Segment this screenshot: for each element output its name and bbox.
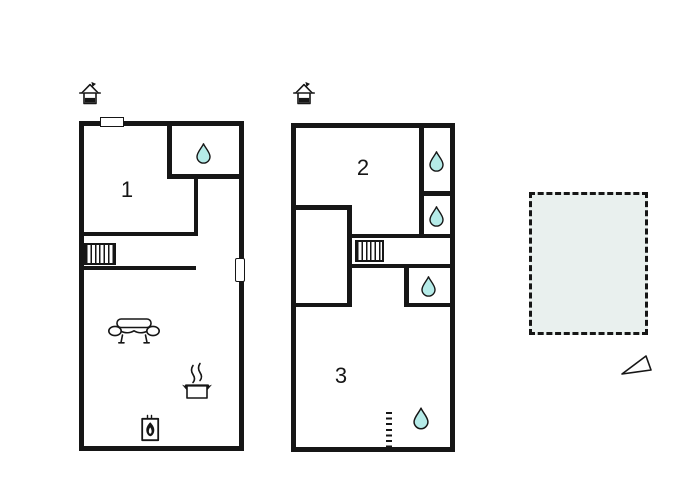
floor2-leftroom-top-wall-h (296, 205, 352, 210)
north-arrow-icon (615, 348, 655, 378)
floor2-dashed-divider (386, 412, 392, 447)
floor2-bathcolumn-wall-v (419, 128, 424, 238)
water-drop-icon (421, 276, 436, 297)
floor2-leftroom-bottom-wall-h (296, 303, 352, 308)
floor2-landing-bottom-wall-h (352, 264, 451, 269)
floor2-stairs-icon (355, 240, 384, 262)
water-drop-icon (429, 151, 444, 172)
room-3-label: 3 (330, 365, 352, 387)
water-drop-icon (413, 407, 429, 430)
water-drop-icon (429, 206, 444, 227)
floor2-bath3-bottom-wall-h (404, 303, 451, 308)
floor2-landing-top-wall-h (349, 234, 451, 239)
floor2-center-wall-v (347, 206, 352, 307)
room-2-label: 2 (352, 157, 374, 179)
floor2-bath3-wall-v (404, 268, 409, 307)
entrance-house-icon (293, 81, 315, 105)
floor-plan-image: 1 (0, 0, 700, 500)
terrace-area (529, 192, 648, 335)
floor2-bathcells-wall-h (423, 191, 451, 196)
